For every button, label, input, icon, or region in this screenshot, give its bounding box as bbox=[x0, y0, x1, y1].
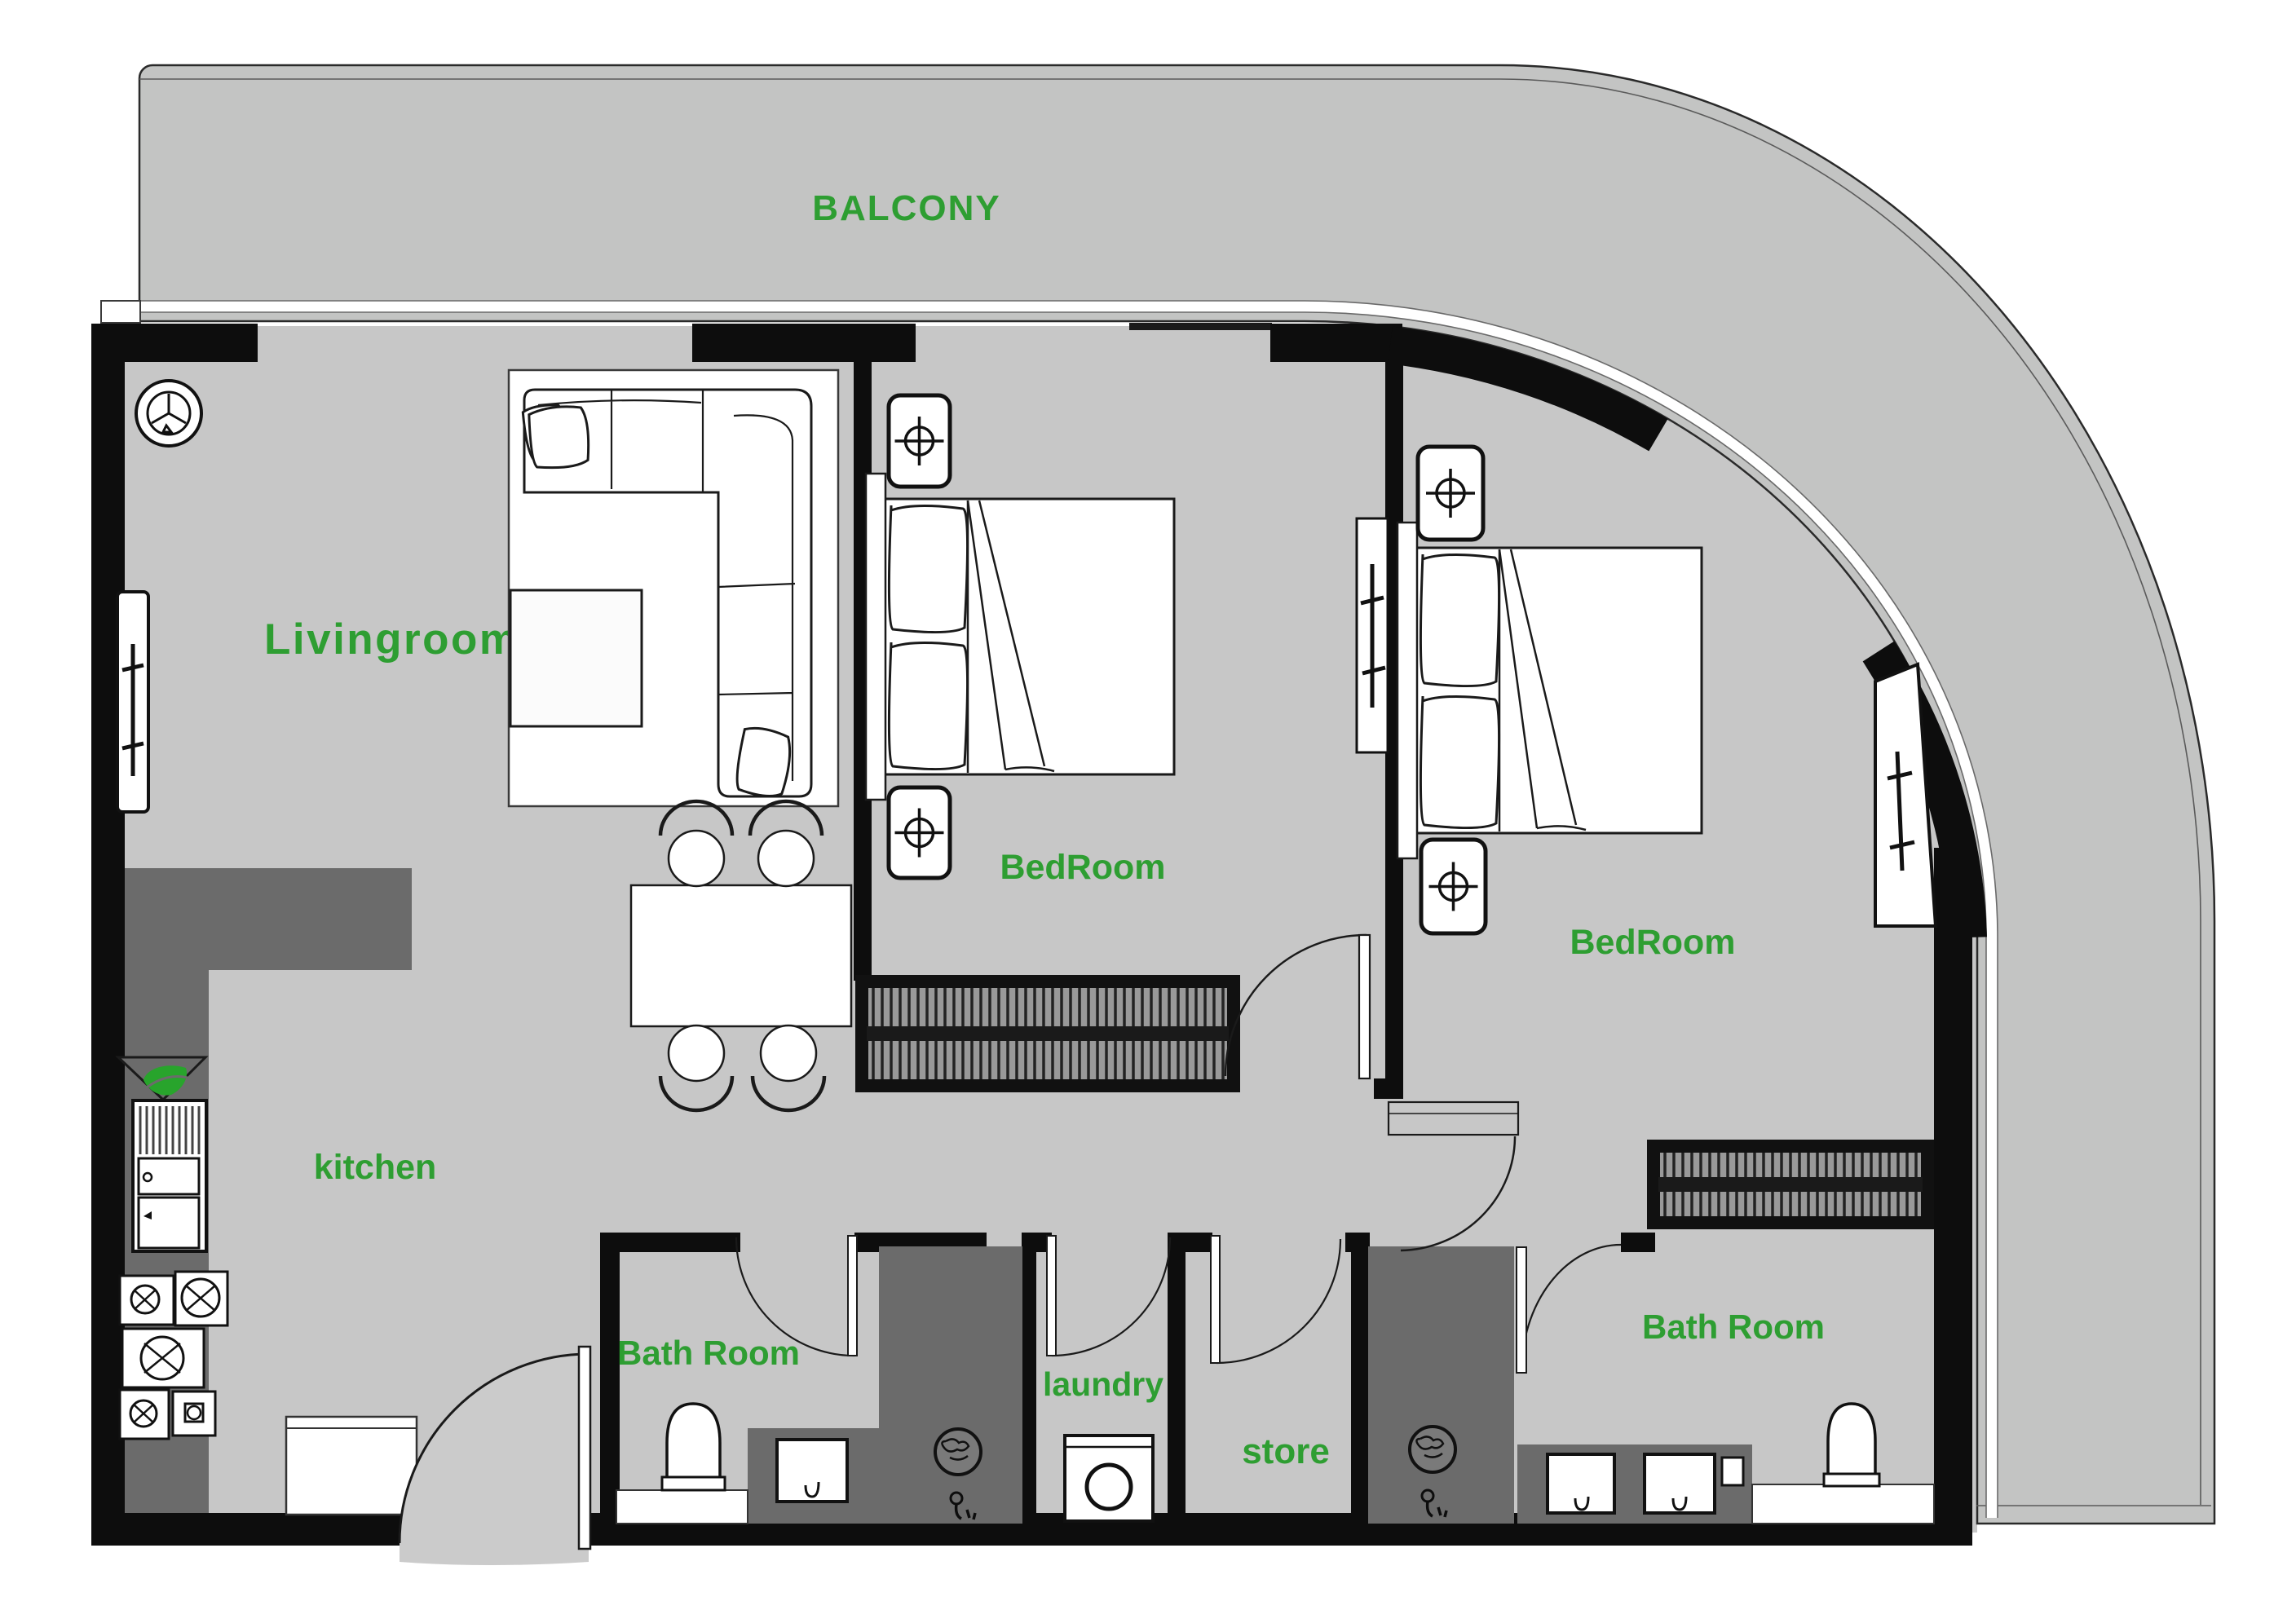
svg-text:store: store bbox=[1242, 1431, 1330, 1471]
svg-text:Livingroom: Livingroom bbox=[264, 615, 520, 664]
svg-text:BedRoom: BedRoom bbox=[1000, 848, 1165, 887]
svg-text:BedRoom: BedRoom bbox=[1570, 923, 1735, 962]
svg-text:laundry: laundry bbox=[1043, 1365, 1163, 1403]
svg-text:BALCONY: BALCONY bbox=[812, 188, 1001, 228]
svg-text:Bath Room: Bath Room bbox=[617, 1334, 800, 1372]
svg-text:kitchen: kitchen bbox=[314, 1148, 437, 1187]
svg-text:Bath Room: Bath Room bbox=[1642, 1308, 1825, 1346]
